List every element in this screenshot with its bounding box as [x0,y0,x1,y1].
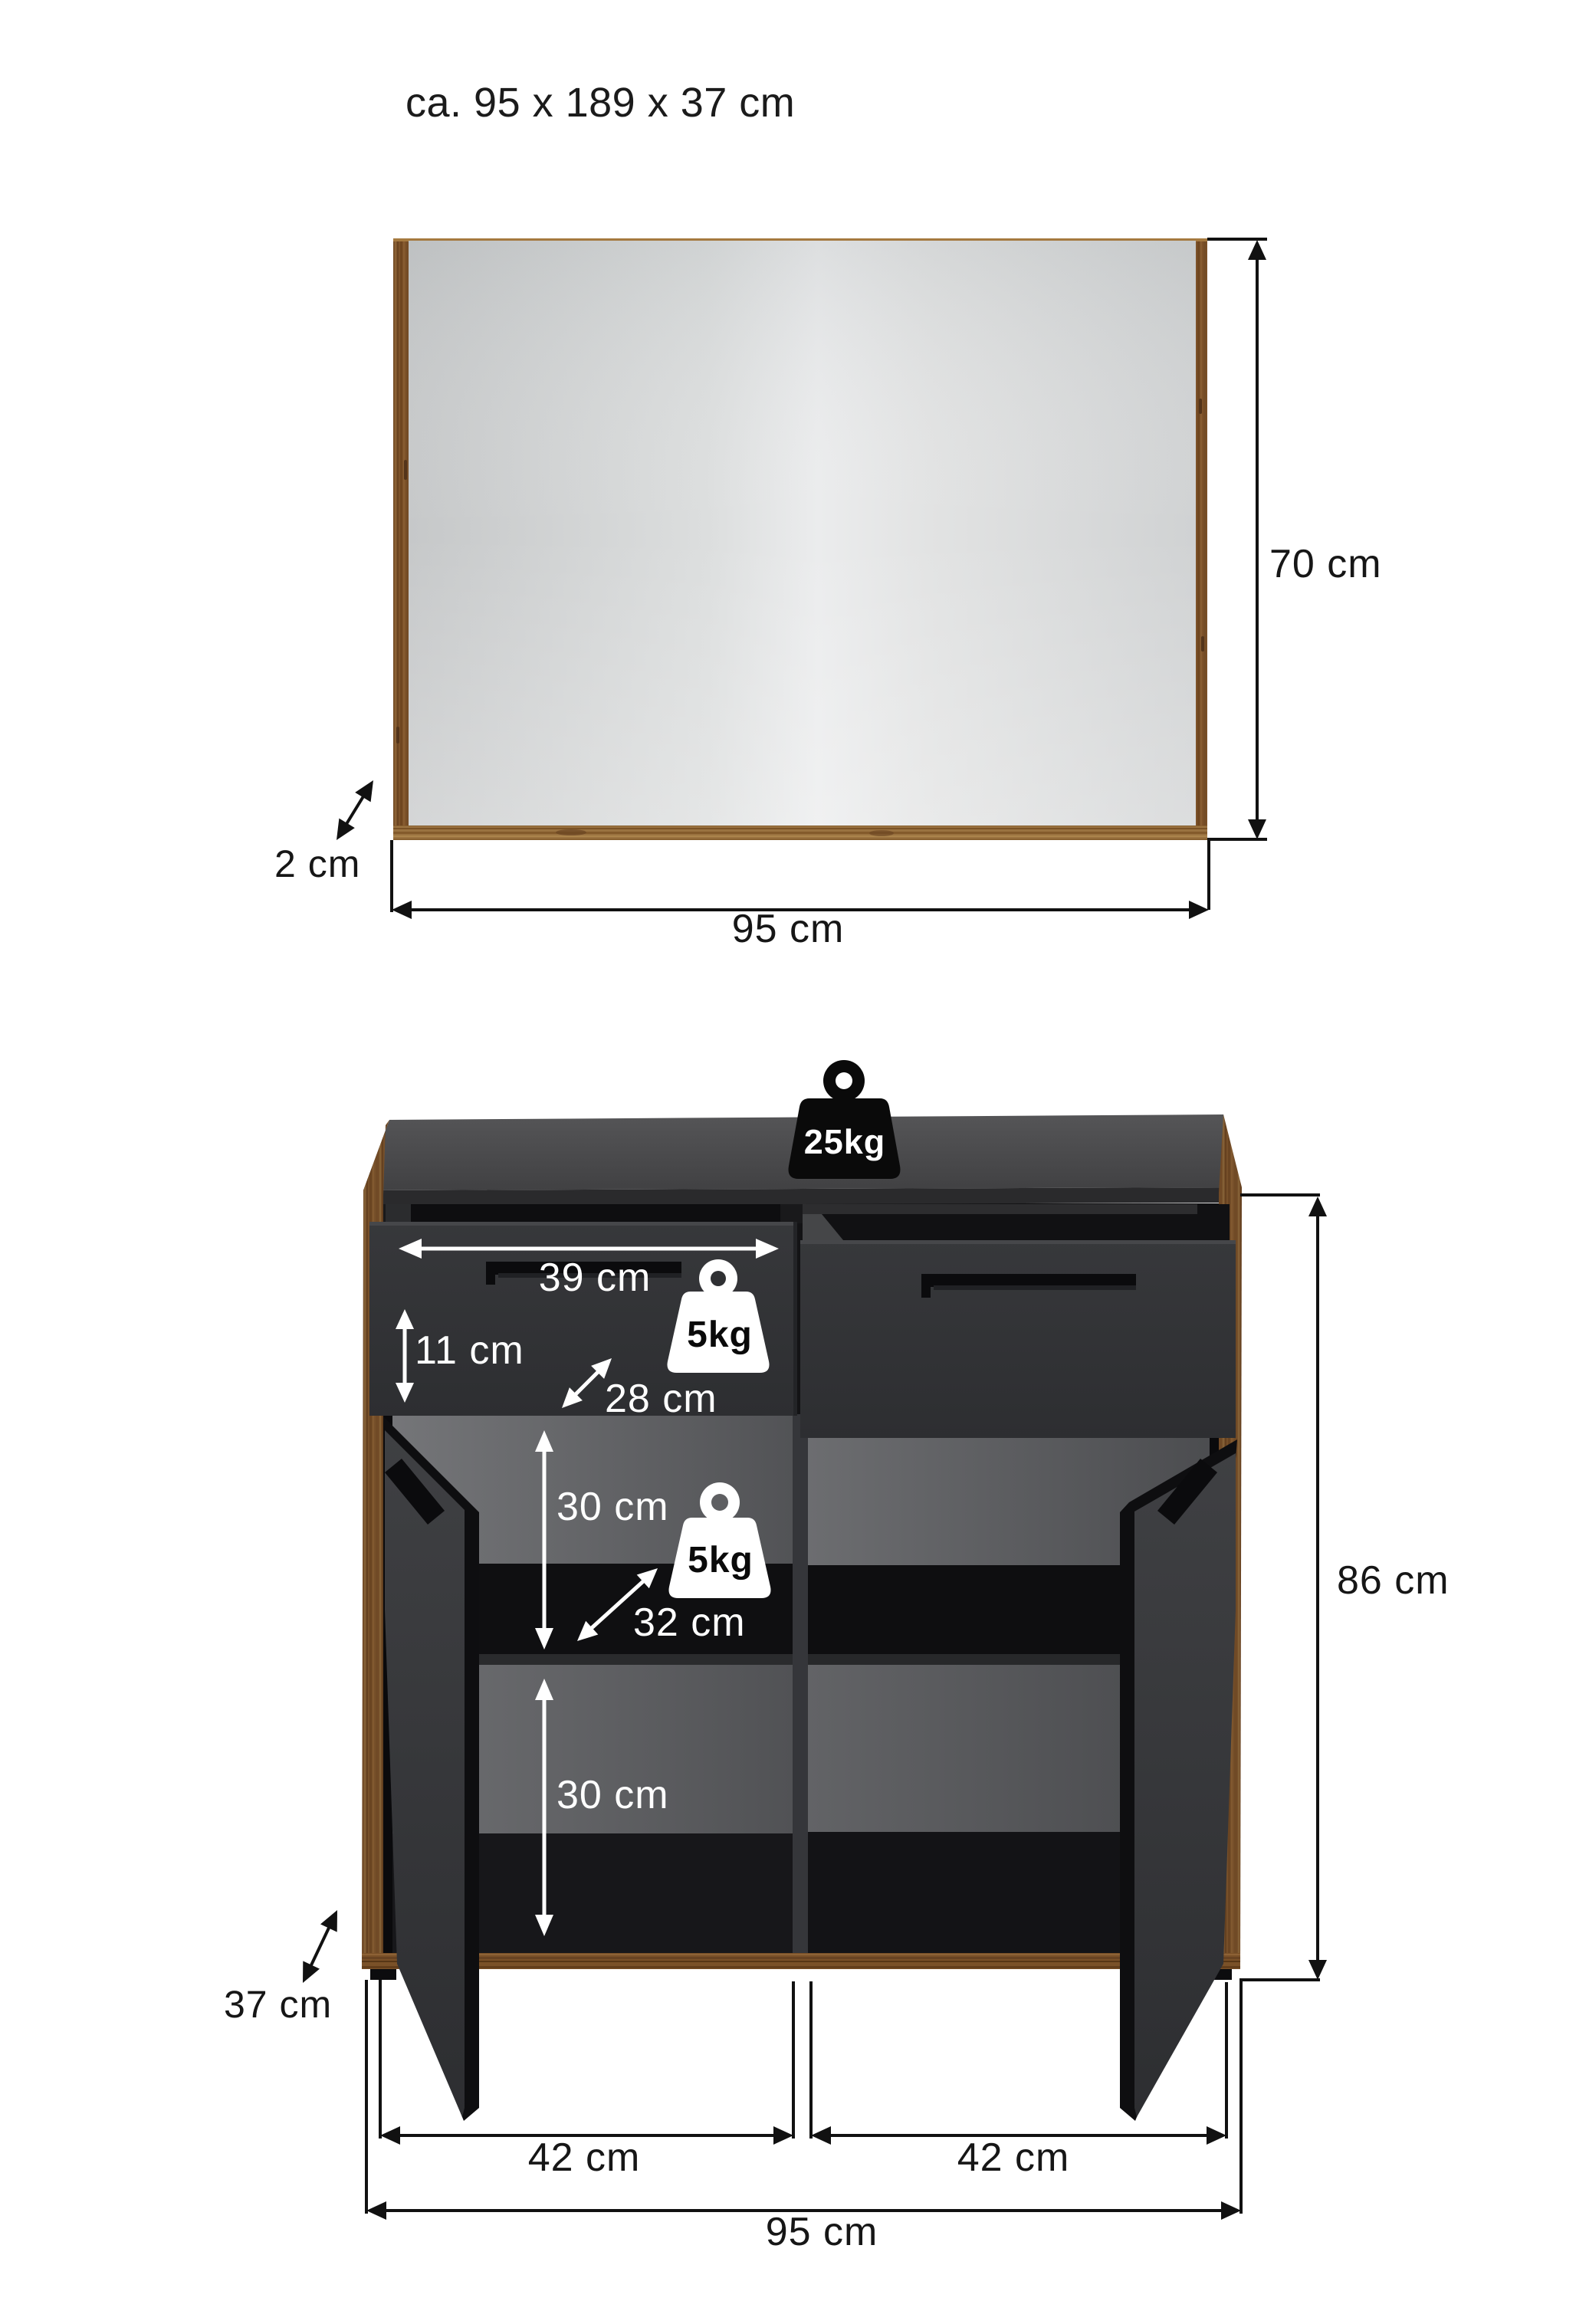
svg-text:37 cm: 37 cm [224,1983,332,2026]
svg-text:11 cm: 11 cm [415,1328,524,1373]
svg-text:28 cm: 28 cm [605,1377,717,1421]
svg-text:5kg: 5kg [688,1540,754,1581]
svg-text:30 cm: 30 cm [557,1773,669,1817]
svg-text:30 cm: 30 cm [557,1485,669,1529]
svg-text:95 cm: 95 cm [766,2210,878,2254]
svg-text:5kg: 5kg [687,1315,753,1355]
svg-text:42 cm: 42 cm [957,2135,1070,2180]
svg-text:39 cm: 39 cm [539,1256,652,1300]
svg-text:42 cm: 42 cm [528,2135,641,2180]
svg-text:86 cm: 86 cm [1337,1558,1450,1603]
svg-text:70 cm: 70 cm [1269,542,1382,586]
svg-text:25kg: 25kg [804,1122,886,1161]
svg-text:32 cm: 32 cm [633,1600,746,1645]
svg-text:2 cm: 2 cm [274,842,360,885]
svg-text:ca. 95 x 189 x 37 cm: ca. 95 x 189 x 37 cm [405,80,795,126]
svg-text:95 cm: 95 cm [732,907,845,951]
